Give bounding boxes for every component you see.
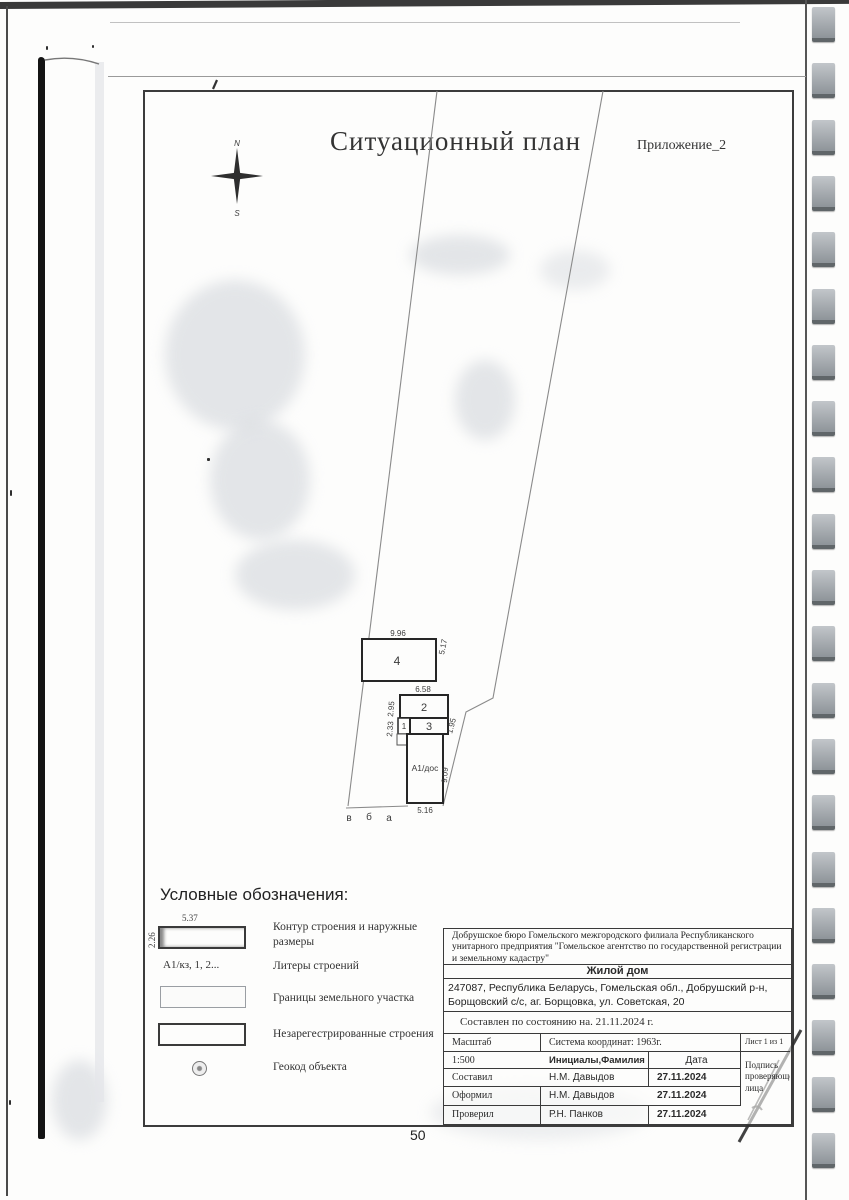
legend-contour-top-dim: 5.37 bbox=[182, 913, 198, 923]
stamp-grid: Масштаб Система координат: 1963г. Лист 1… bbox=[444, 1034, 791, 1126]
legend-header: Условные обозначения: bbox=[160, 885, 348, 905]
role-cell: Оформил bbox=[444, 1087, 541, 1106]
signature-cell: Подпись проверяющего лица bbox=[741, 1052, 790, 1126]
building-label: 2 bbox=[421, 702, 427, 714]
legend-item-label: Геокод объекта bbox=[273, 1060, 448, 1075]
compass-icon: N S bbox=[211, 139, 263, 218]
name-cell: Н.М. Давыдов bbox=[541, 1087, 649, 1106]
svg-text:в: в bbox=[346, 813, 351, 824]
legend-item-label: Незарегестрированные строения bbox=[273, 1027, 448, 1042]
building-outlines bbox=[362, 639, 448, 803]
legend-borders-symbol bbox=[160, 986, 246, 1008]
name-cell: Р.Н. Панков bbox=[541, 1106, 649, 1126]
sheet-label: Лист 1 из 1 bbox=[741, 1034, 790, 1052]
scan-tick-mark bbox=[213, 80, 217, 89]
stamp-organization: Добрушское бюро Гомельского межгородског… bbox=[444, 929, 791, 965]
scan-hook-line bbox=[45, 58, 99, 64]
role-cell: Проверил bbox=[444, 1106, 541, 1126]
svg-text:2.95: 2.95 bbox=[386, 700, 396, 717]
name-header: Инициалы,Фамилия bbox=[541, 1052, 649, 1069]
parcel-boundary bbox=[346, 91, 603, 808]
building-label: 4 bbox=[394, 654, 401, 668]
legend-unregistered-symbol bbox=[158, 1023, 246, 1046]
legend-liters-symbol: А1/кз, 1, 2... bbox=[163, 959, 219, 971]
legend-geocode-symbol bbox=[192, 1061, 207, 1076]
boundary-point-letters: в б а bbox=[346, 811, 392, 824]
date-cell: 27.11.2024 bbox=[649, 1087, 741, 1106]
building-label: 1 bbox=[402, 722, 407, 731]
legend-contour-symbol bbox=[158, 926, 246, 949]
building-label: А1/дос bbox=[412, 763, 439, 773]
date-cell: 27.11.2024 bbox=[649, 1069, 741, 1087]
coord-system: Система координат: 1963г. bbox=[541, 1034, 741, 1052]
svg-text:5.17: 5.17 bbox=[437, 638, 449, 656]
scale-label: Масштаб bbox=[444, 1034, 541, 1052]
legend-contour-left-dim: 2.26 bbox=[147, 932, 157, 948]
svg-text:9.96: 9.96 bbox=[390, 629, 406, 638]
compass-south-label: S bbox=[234, 209, 240, 218]
role-cell: Составил bbox=[444, 1069, 541, 1087]
stamp-address: 247087, Республика Беларусь, Гомельская … bbox=[444, 979, 791, 1012]
svg-text:9.09: 9.09 bbox=[440, 767, 450, 784]
date-header: Дата bbox=[649, 1052, 741, 1069]
svg-text:5.16: 5.16 bbox=[417, 806, 433, 815]
legend-item-label: Границы земельного участка bbox=[273, 991, 448, 1006]
legend-item-label: Литеры строений bbox=[273, 959, 448, 974]
stamp-table: Добрушское бюро Гомельского межгородског… bbox=[443, 928, 792, 1125]
stamp-compiled-date: Составлен по состоянию на. 21.11.2024 г. bbox=[444, 1012, 791, 1034]
stamp-object-type: Жилой дом bbox=[444, 965, 791, 979]
name-cell: Н.М. Давыдов bbox=[541, 1069, 649, 1087]
compass-north-label: N bbox=[234, 139, 240, 148]
scale-value: 1:500 bbox=[444, 1052, 541, 1069]
page-number: 50 bbox=[410, 1127, 426, 1143]
building-label: 3 bbox=[426, 721, 432, 733]
svg-text:а: а bbox=[386, 813, 392, 824]
svg-text:2.33: 2.33 bbox=[385, 720, 395, 737]
svg-text:6.58: 6.58 bbox=[415, 685, 431, 694]
svg-text:б: б bbox=[366, 811, 372, 823]
legend-item-label: Контур строения и наружные размеры bbox=[273, 920, 448, 950]
date-cell: 27.11.2024 bbox=[649, 1106, 741, 1126]
